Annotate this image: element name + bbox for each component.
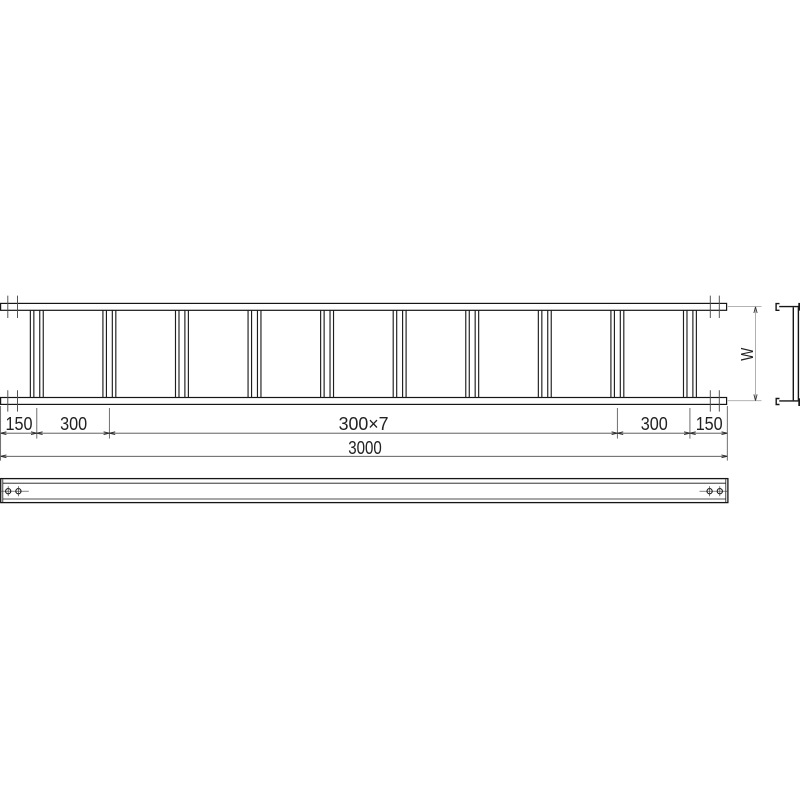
svg-text:150: 150 xyxy=(6,413,33,434)
svg-text:W: W xyxy=(737,347,757,360)
svg-text:300: 300 xyxy=(641,413,668,434)
svg-text:300: 300 xyxy=(60,413,87,434)
svg-text:150: 150 xyxy=(696,413,723,434)
svg-text:300×7: 300×7 xyxy=(339,413,389,434)
svg-text:3000: 3000 xyxy=(348,437,382,458)
